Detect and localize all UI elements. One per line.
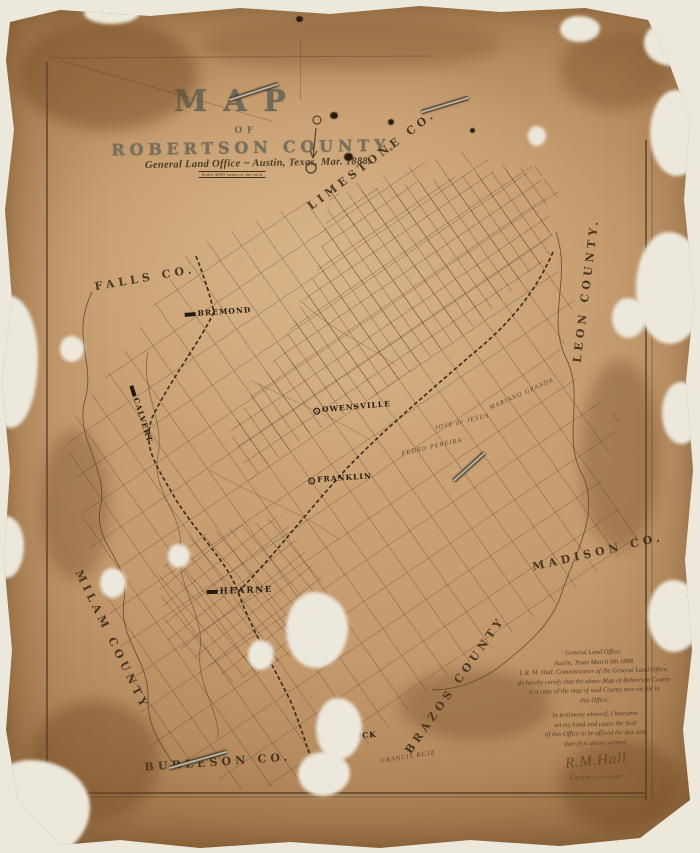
stain xyxy=(200,20,500,70)
map-title-of: OF xyxy=(234,126,257,136)
fold-crease xyxy=(300,40,301,100)
ink-spot xyxy=(344,153,353,161)
stain xyxy=(580,360,660,550)
map-paper: MAP OF ROBERTSON COUNTY. General Land Of… xyxy=(0,0,700,853)
ink-spot xyxy=(470,128,475,133)
edge-tear xyxy=(636,232,700,344)
ink-spot xyxy=(330,112,338,119)
edge-tear xyxy=(662,382,700,444)
edge-tear xyxy=(650,90,700,176)
edge-tear xyxy=(648,580,700,652)
ink-spot xyxy=(296,16,303,22)
stain xyxy=(560,740,680,830)
creeks xyxy=(210,300,395,540)
edge-tear xyxy=(644,20,700,66)
ign-railroad xyxy=(238,252,553,592)
scale-note: Scale 4000 varas to the inch xyxy=(199,171,266,178)
town-marker xyxy=(313,407,321,415)
navasota-river xyxy=(432,232,589,690)
scanned-map-page: MAP OF ROBERTSON COUNTY. General Land Of… xyxy=(0,0,700,853)
ink-spot xyxy=(388,119,394,125)
stain xyxy=(400,670,550,740)
town-marker xyxy=(207,589,218,593)
town-marker xyxy=(129,385,136,397)
stain xyxy=(40,430,110,580)
town-marker xyxy=(185,312,196,317)
town-marker xyxy=(308,477,315,484)
